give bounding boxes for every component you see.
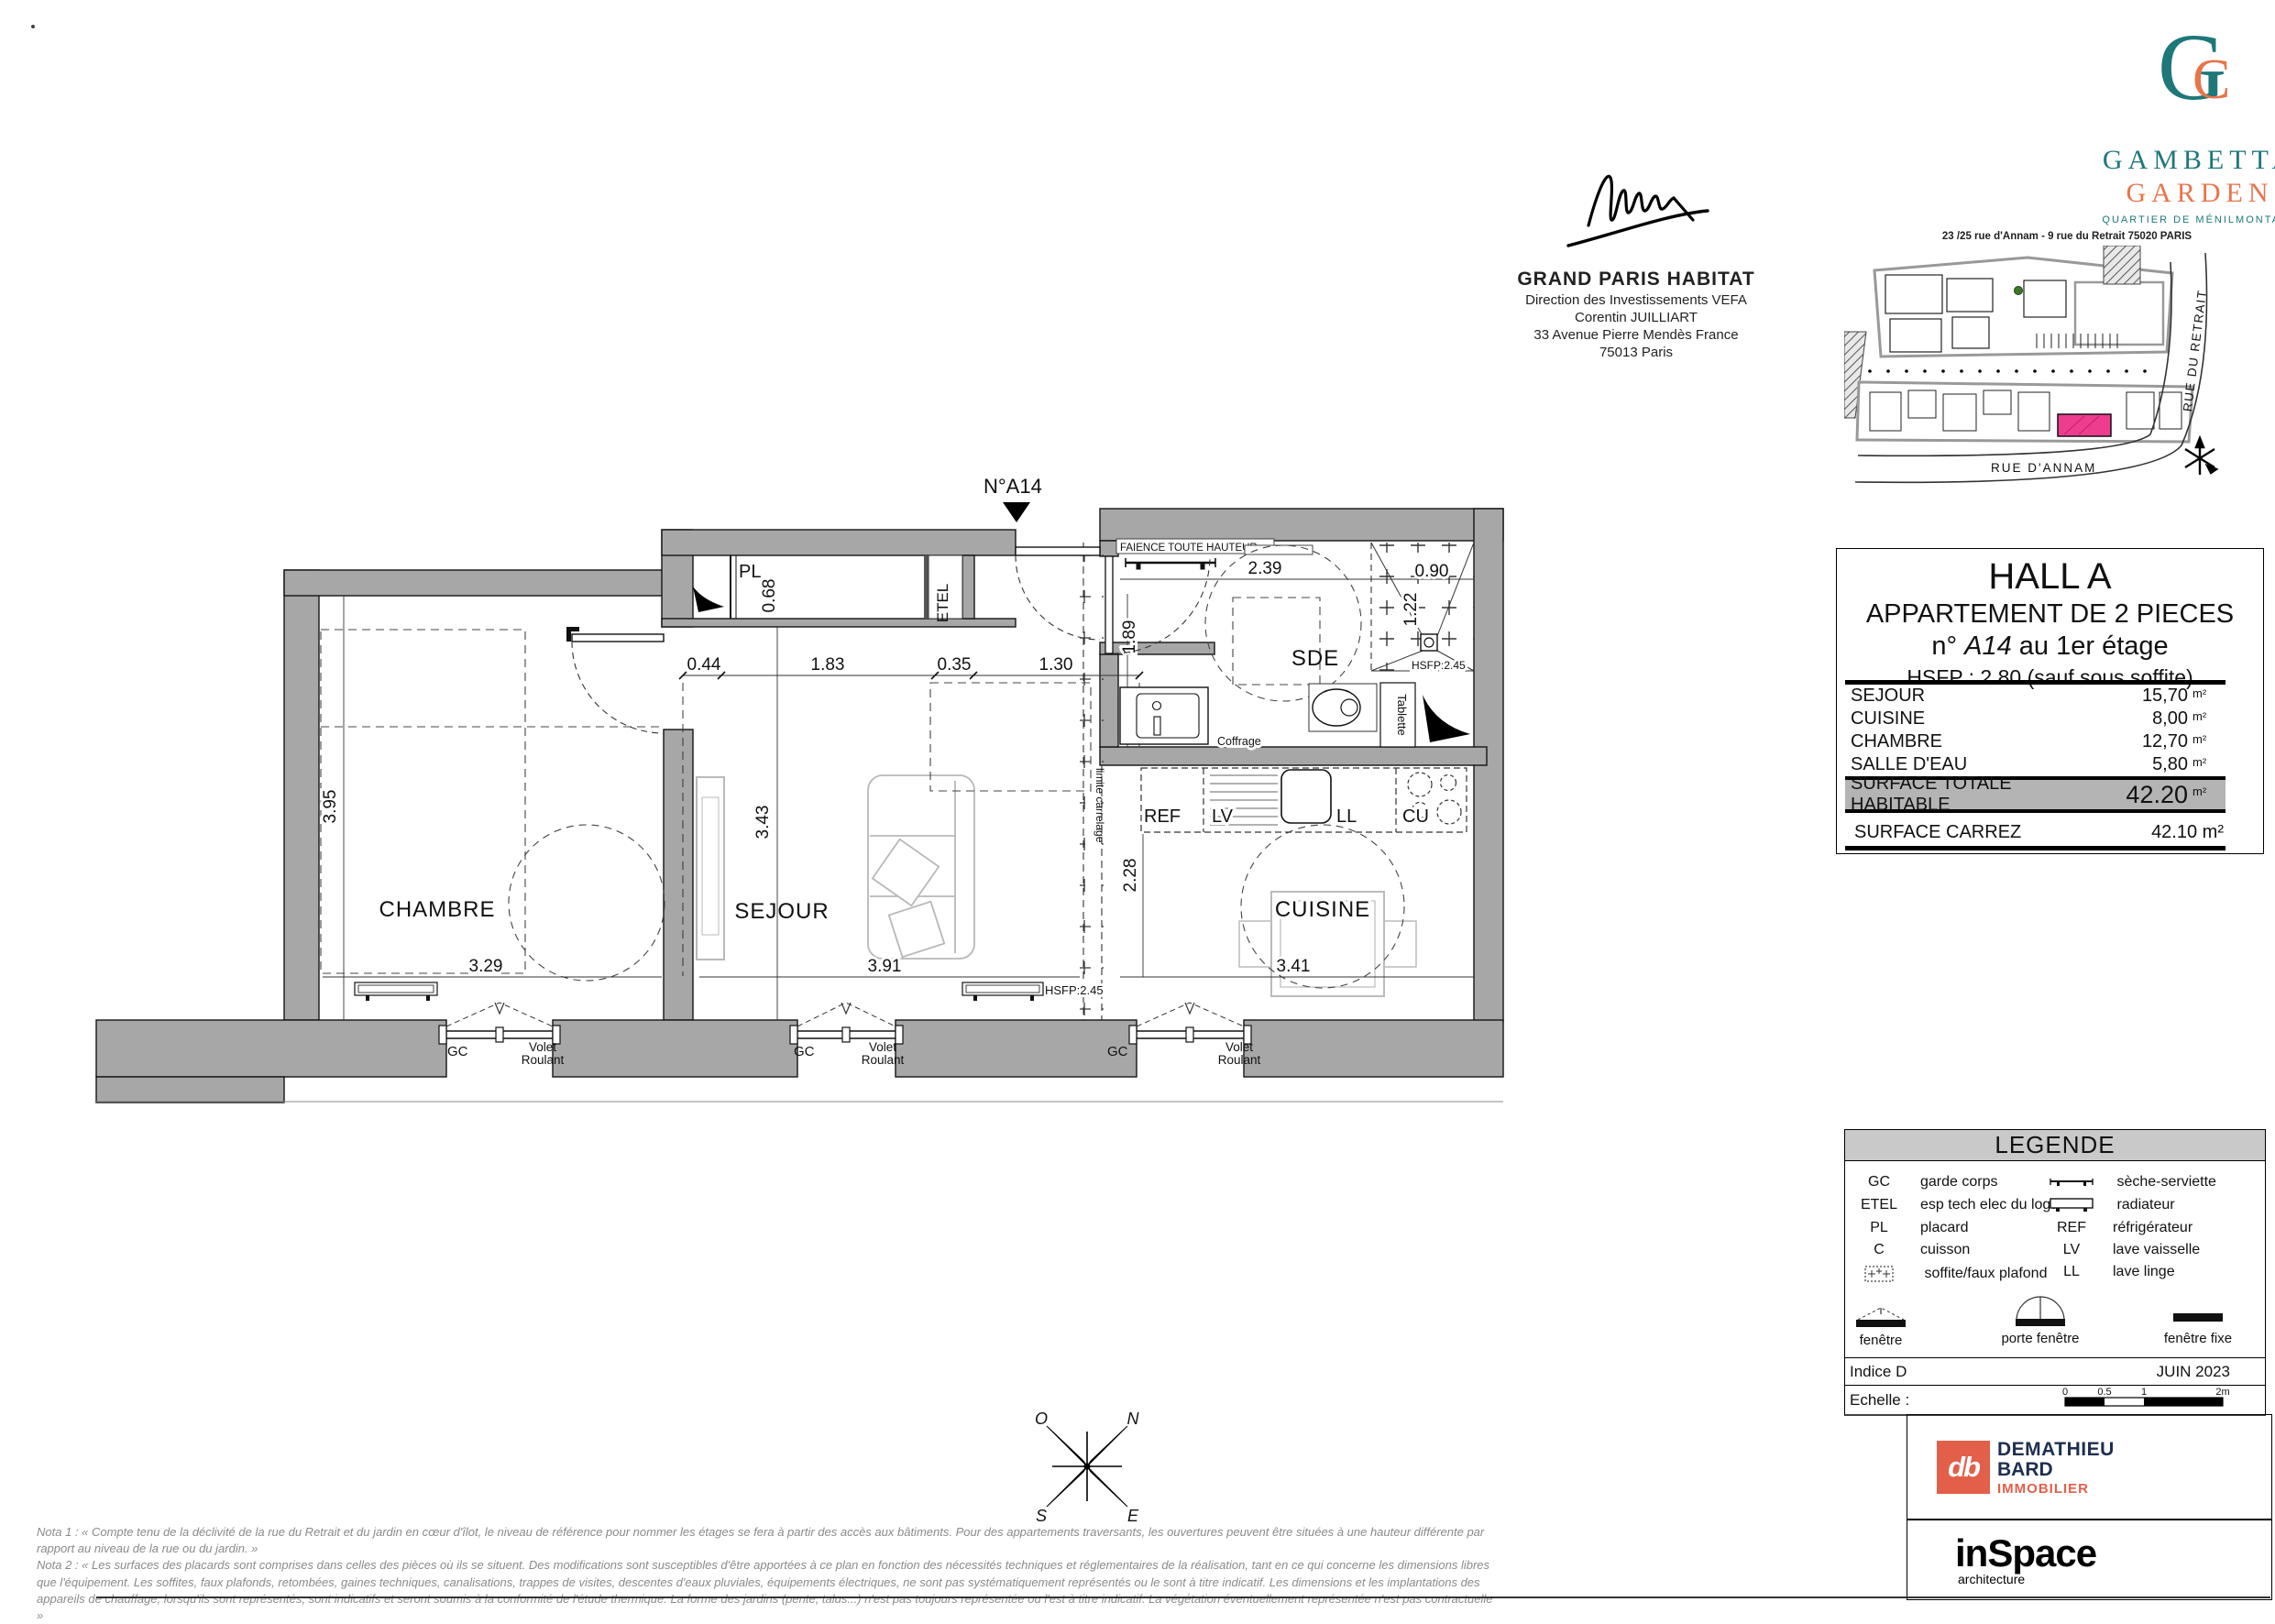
legend-label: fenêtre [1849, 1333, 1913, 1348]
legend-item: soffite/faux plafond [1851, 1266, 2047, 1282]
volet-label: Volet [1225, 1040, 1253, 1054]
divider [1845, 1357, 2265, 1358]
hall-title: HALL A [1837, 556, 2263, 598]
site-dotted-row [1868, 369, 2147, 373]
surface-unit: m² [2188, 686, 2226, 706]
cuisine-dim-h: 2.28 [1121, 859, 1140, 893]
compass-s: S [1036, 1507, 1047, 1525]
brand-name-gambetta: GAMBETTA [2067, 145, 2275, 176]
tv-unit [697, 777, 724, 960]
inspace-tagline: architecture [1958, 1572, 2025, 1586]
demathieu-bard-logo-icon: db [1937, 1441, 1990, 1494]
surface-label: CUISINE [1845, 708, 2115, 730]
brand-name-garden: GARDEN [2067, 178, 2275, 209]
surface-value: 5,80 [2115, 754, 2188, 775]
legend-label: soffite/faux plafond [1911, 1266, 2047, 1282]
table-row: CUISINE 8,00 m² [1845, 708, 2226, 730]
sofa [868, 775, 974, 959]
tablette-label: Tablette [1395, 694, 1409, 736]
scale-tick: 0.5 [2097, 1387, 2111, 1398]
legend-label: cuisson [1907, 1242, 1970, 1258]
legend-item: PLplacard [1851, 1220, 1968, 1236]
plan-notes: Nota 1 : « Compte tenu de la déclivité d… [37, 1524, 1494, 1624]
legend-label: placard [1907, 1220, 1968, 1236]
sde-label: SDE [1291, 646, 1339, 671]
legend-abbr: GC [1851, 1174, 1907, 1191]
room-chambre: CHAMBRE 3.95 3.29 [321, 596, 665, 1020]
cuisine-label: CUISINE [1275, 897, 1370, 922]
brand-tagline: QUARTIER DE MÉNILMONTANT [2067, 214, 2275, 225]
limite-carrelage-label: limite carrelage [1094, 768, 1106, 843]
legend-abbr: REF [2043, 1220, 2100, 1236]
room-sejour: SEJOUR 3.43 3.91 HSFP:2.45 [697, 626, 1104, 1020]
developer-address2: 75013 Paris [1480, 345, 1792, 360]
lv-label: LV [1212, 807, 1234, 827]
entrance-arrow-icon [1003, 502, 1030, 522]
legend-label: radiateur [2104, 1197, 2174, 1213]
surface-value: 12,70 [2115, 731, 2188, 752]
table-row: SEJOUR 15,70 m² [1845, 685, 2226, 708]
scale-bar: 0 0.5 1 2m [2054, 1386, 2237, 1413]
date-label: JUIN 2023 [2157, 1363, 2230, 1381]
unit-marker-label: N°A14 [984, 475, 1042, 498]
project-address: 23 /25 rue d'Annam - 9 rue du Retrait 75… [1865, 231, 2269, 242]
surface-total-value: 42.20 [2104, 781, 2188, 809]
pl-dim: 0.68 [760, 579, 779, 613]
legend-abbr: PL [1851, 1220, 1907, 1236]
window-sejour: GC Volet Roulant [790, 1003, 905, 1067]
surface-carrez-row: SURFACE CARREZ 42.10 m² [1845, 818, 2226, 850]
street-label-annam: RUE D'ANNAM [1991, 461, 2096, 475]
legend-label: garde corps [1907, 1174, 1998, 1191]
surface-label: CHAMBRE [1845, 731, 2115, 752]
turning-circle [1205, 545, 1361, 701]
unit-number-line: n° A14 au 1er étage [1837, 631, 2263, 662]
indice-label: Indice D [1850, 1363, 1907, 1381]
unit-prefix: n° [1931, 631, 1957, 661]
etel-closet: ETEL [929, 555, 962, 622]
demathieu-bard-block: db DEMATHIEU BARD IMMOBILIER [1907, 1414, 2272, 1520]
site-plan: RUE DU RETRAIT RUE D'ANNAM [1844, 246, 2275, 504]
room-cuisine: REF LV LL CU CUISINE 2.28 3.41 [1120, 768, 1474, 996]
legend-label: sèche-serviette [2104, 1174, 2216, 1191]
surface-total-row: SURFACE TOTALE HABITABLE 42.20 m² [1845, 776, 2226, 813]
site-south-block [1857, 382, 2193, 442]
radiator-icon [962, 982, 1043, 1001]
legend-label: lave linge [2100, 1264, 2175, 1280]
legend-window-fenetre: fenêtre [1849, 1304, 1913, 1348]
legend-item: REFréfrigérateur [2043, 1220, 2193, 1236]
nota-2: Nota 2 : « Les surfaces des placards son… [37, 1557, 1494, 1624]
scale-tick: 0 [2062, 1387, 2068, 1398]
porte-fenetre-icon [2014, 1288, 2067, 1328]
scale-tick: 1 [2141, 1387, 2147, 1398]
nota-1: Nota 1 : « Compte tenu de la déclivité d… [37, 1524, 1494, 1557]
compass-rose-icon: N O S E [1016, 1400, 1162, 1538]
shower-dim-w: 0.90 [1415, 562, 1449, 581]
legend-title: LEGENDE [1845, 1130, 2265, 1161]
surface-unit: m² [2188, 709, 2226, 729]
sejour-hsfp-note: HSFP:2.45 [1045, 983, 1104, 997]
turning-circle [509, 825, 665, 981]
legend-item: LLlave linge [2043, 1264, 2175, 1280]
tablette: Tablette [1380, 683, 1415, 747]
project-logo: G C GAMBETTA GARDEN QUARTIER DE MÉNILMON… [2067, 26, 2275, 225]
legend-item: Ccuisson [1851, 1242, 1970, 1258]
unit-number: A14 [1964, 631, 2012, 661]
sde-dim-w: 2.39 [1248, 559, 1282, 578]
chambre-dim-h: 3.95 [321, 790, 340, 824]
legend-item: sèche-serviette [2043, 1174, 2216, 1191]
compass-e: E [1127, 1507, 1139, 1525]
sde-dim-h: 1.89 [1120, 620, 1139, 654]
legend-abbr: LV [2043, 1242, 2100, 1258]
sde-hsfp-note: HSFP:2.45 [1412, 659, 1466, 672]
volet-label: Volet [869, 1040, 896, 1054]
seche-serviette-icon [2043, 1174, 2100, 1191]
surface-value: 8,00 [2115, 708, 2188, 730]
volet-label: Roulant [862, 1053, 905, 1067]
ll-label: LL [1336, 807, 1357, 827]
monogram-c: C [2193, 48, 2230, 113]
dim-hall-4: 1.30 [1039, 655, 1073, 675]
legend-label: porte fenêtre [1990, 1331, 2091, 1346]
developer-stamp: GRAND PARIS HABITAT Direction des Invest… [1480, 154, 1792, 360]
gc-label: GC [1107, 1044, 1128, 1059]
cuisine-dim-w: 3.41 [1277, 957, 1311, 976]
surface-label: SEJOUR [1845, 686, 2115, 707]
legend-abbr: C [1851, 1242, 1907, 1258]
dim-hall-1: 0.44 [687, 655, 721, 675]
surface-table: SEJOUR 15,70 m² CUISINE 8,00 m² CHAMBRE … [1845, 680, 2226, 850]
inspace-wordmark: inSpace [1955, 1531, 2096, 1575]
developer-name: GRAND PARIS HABITAT [1480, 269, 1792, 291]
table-row: CHAMBRE 12,70 m² [1845, 730, 2226, 753]
legend-abbr: ETEL [1851, 1197, 1907, 1213]
developer-contact: Corentin JUILLIART [1480, 310, 1792, 325]
gambetta-garden-monogram-icon: G C [2145, 26, 2255, 137]
shower-dim-h: 1.22 [1401, 593, 1421, 627]
echelle-row: Echelle : 0 0.5 1 2m [1845, 1386, 2265, 1414]
legend-item: GCgarde corps [1851, 1174, 1998, 1191]
legend-window-fenetre-fixe: fenêtre fixe [2157, 1306, 2239, 1346]
window-chambre: GC Volet Roulant [439, 1003, 565, 1067]
pl-closet: PL 0.68 [693, 555, 779, 619]
surface-label: SALLE D'EAU [1845, 754, 2115, 775]
legend-window-porte-fenetre: porte fenêtre [1990, 1288, 2091, 1346]
radiateur-icon [2043, 1197, 2100, 1213]
sejour-dim-w: 3.91 [868, 957, 902, 976]
legend-label: esp tech elec du logt [1907, 1197, 2055, 1213]
seche-serviette-icon [1126, 558, 1215, 569]
legend-item: ETELesp tech elec du logt [1851, 1197, 2055, 1213]
surface-unit: m² [2188, 755, 2226, 774]
shaft-icon [1423, 695, 1470, 742]
gc-label: GC [447, 1044, 468, 1059]
chambre-dim-w: 3.29 [469, 957, 503, 976]
legend-abbr: LL [2043, 1264, 2100, 1280]
shower: 0.90 1.22 HSFP:2.45 [1371, 543, 1474, 672]
soffite-swatch-icon [1851, 1266, 1907, 1282]
inspace-block: inSpace architecture [1907, 1520, 2272, 1600]
ref-label: REF [1144, 807, 1181, 827]
gc-label: GC [794, 1044, 815, 1059]
etel-label: ETEL [934, 584, 951, 623]
page-bottom-rule [96, 1597, 2270, 1598]
signature-icon [1480, 154, 1792, 264]
surface-unit: m² [2188, 732, 2226, 752]
volet-label: Volet [529, 1040, 556, 1054]
unit-floor: au 1er étage [2019, 631, 2169, 661]
demathieu-bard-wordmark: DEMATHIEU BARD IMMOBILIER [1997, 1440, 2115, 1496]
scale-tick: 2m [2215, 1387, 2229, 1398]
surface-total-label: SURFACE TOTALE HABITABLE [1845, 774, 2104, 816]
fenetre-icon [1854, 1304, 1907, 1330]
pl-label: PL [739, 562, 761, 582]
dmb-line1: DEMATHIEU [1997, 1440, 2115, 1459]
faience-label: FAIENCE TOUTE HAUTEUR [1120, 543, 1258, 554]
apartment-type: APPARTEMENT DE 2 PIECES [1837, 599, 2263, 630]
sink-icon [1281, 770, 1331, 823]
chambre-door [566, 627, 664, 733]
developer-address1: 33 Avenue Pierre Mendès France [1480, 327, 1792, 343]
legend-panel: LEGENDE GCgarde corps ETELesp tech elec … [1844, 1129, 2266, 1416]
dim-hall-2: 1.83 [811, 655, 845, 675]
radiator-icon [355, 982, 437, 1001]
washbasin-icon [1120, 687, 1208, 744]
indice-row: Indice D JUIN 2023 [1845, 1359, 2265, 1385]
toilet-icon [1309, 684, 1377, 731]
site-hatched-building [2104, 246, 2140, 284]
coffrage-label: Coffrage [1217, 735, 1261, 748]
dim-hall-3: 0.35 [938, 655, 972, 675]
carrez-label: SURFACE CARREZ [1845, 822, 2105, 843]
cu-label: CU [1402, 807, 1429, 827]
page-corner-dot [31, 25, 35, 28]
site-tree-icon [2015, 287, 2023, 295]
unit-info-panel: HALL A APPARTEMENT DE 2 PIECES n° A14 au… [1836, 548, 2264, 854]
volet-label: Roulant [1218, 1053, 1261, 1067]
volet-label: Roulant [522, 1053, 565, 1067]
sejour-label: SEJOUR [734, 899, 829, 924]
fenetre-fixe-icon [2171, 1306, 2225, 1328]
legend-item: radiateur [2043, 1197, 2175, 1213]
shaft-icon [693, 587, 724, 612]
surface-total-unit: m² [2188, 785, 2226, 806]
unit-marker: N°A14 [984, 475, 1042, 522]
legend-label: lave vaisselle [2100, 1242, 2200, 1258]
developer-dept: Direction des Investissements VEFA [1480, 292, 1792, 308]
surface-value: 15,70 [2115, 686, 2188, 707]
chambre-label: CHAMBRE [379, 897, 495, 922]
carrez-value: 42.10 m² [2105, 822, 2226, 843]
sejour-dim-h: 3.43 [753, 806, 773, 839]
site-north-star-icon [2185, 438, 2216, 475]
dmb-line3: IMMOBILIER [1997, 1482, 2115, 1496]
legend-label: réfrigérateur [2100, 1220, 2193, 1236]
legend-item: LVlave vaisselle [2043, 1242, 2200, 1258]
compass-n: N [1127, 1410, 1140, 1428]
compass-o: O [1035, 1410, 1048, 1428]
dmb-line2: BARD [1997, 1460, 2115, 1479]
legend-label: fenêtre fixe [2157, 1331, 2239, 1346]
echelle-label: Echelle : [1850, 1391, 1909, 1410]
floor-plan: N°A14 limite carrelage PL [92, 463, 1540, 1109]
